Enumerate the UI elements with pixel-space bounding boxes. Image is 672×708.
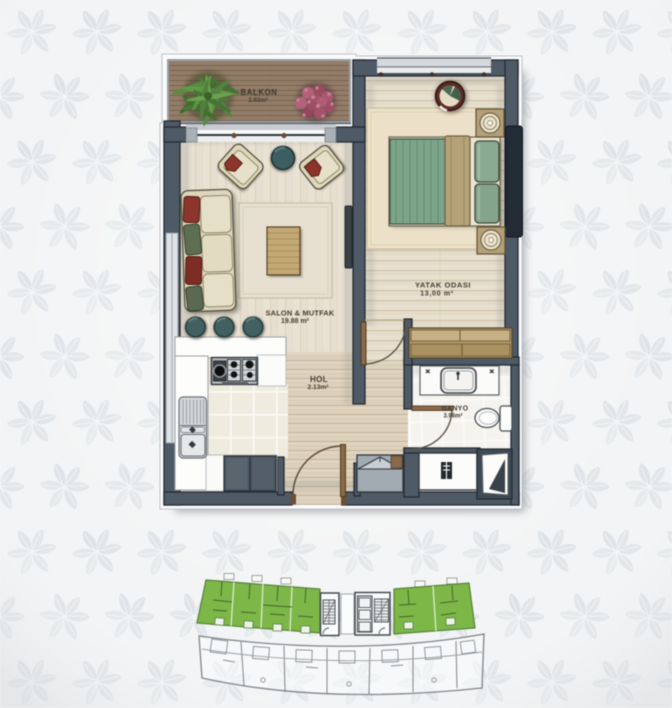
- svg-text:13,00 m²: 13,00 m²: [420, 291, 454, 298]
- svg-text:YATAK ODASI: YATAK ODASI: [415, 281, 471, 290]
- svg-text:3.96m²: 3.96m²: [443, 413, 462, 420]
- svg-text:2.13m²: 2.13m²: [308, 384, 330, 391]
- svg-text:SALON & MUTFAK: SALON & MUTFAK: [266, 309, 335, 318]
- svg-text:19.88 m²: 19.88 m²: [281, 318, 310, 325]
- svg-text:BALKON: BALKON: [241, 88, 278, 97]
- svg-text:3.93m²: 3.93m²: [248, 97, 268, 104]
- svg-text:BANYO: BANYO: [442, 406, 469, 413]
- svg-text:HOL: HOL: [310, 375, 328, 384]
